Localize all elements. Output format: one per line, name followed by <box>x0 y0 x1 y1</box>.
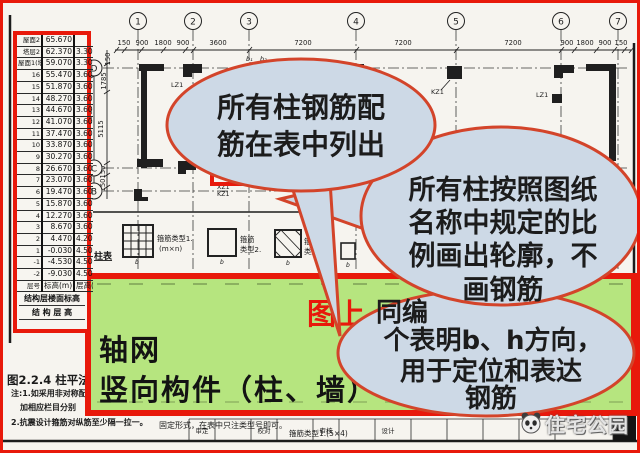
dim-label: 7200 <box>504 39 521 47</box>
note-4: 箍筋类型1.(5×4) <box>289 428 348 439</box>
green-red-label: 图上 <box>307 291 365 333</box>
table-cell: 37.470 <box>42 128 74 140</box>
axis-number: 3 <box>246 18 252 28</box>
axis-number: 7 <box>615 18 621 28</box>
table-cell: 4 <box>17 210 42 222</box>
watermark: 住宅公园 <box>519 407 640 439</box>
table-cell: 1 <box>17 245 42 257</box>
table-cell: 30.270 <box>42 152 74 164</box>
dim-label: 900 <box>136 39 149 47</box>
b-label: b <box>135 259 139 266</box>
b-label: b <box>346 262 350 269</box>
table-cell: 8 <box>17 163 42 175</box>
table-row: 1344.6703.60 <box>17 105 93 117</box>
dim-label: 1785 <box>100 72 108 89</box>
table-cell: 44.670 <box>42 105 74 117</box>
dim-label: 900 <box>599 39 612 47</box>
component-labels: KZ1 LZ1 LZ1 b₁ b₂ <box>171 55 548 99</box>
note-3b: 固定形式，在表中只注类型号即可。 <box>159 420 287 431</box>
table-cell: 48.270 <box>42 93 74 105</box>
table-row: 24.4704.20 <box>17 233 93 245</box>
axis-number: 2 <box>190 18 196 28</box>
table-cell: 3.60 <box>74 187 93 199</box>
top-dim-labels: 150 900 1800 900 3600 7200 7200 7200 900… <box>118 39 628 47</box>
axis-number: 4 <box>353 18 359 28</box>
table-cell <box>74 35 93 46</box>
table-cell: 10 <box>17 140 42 152</box>
table-cell: 51.870 <box>42 81 74 93</box>
axis-number: 6 <box>558 18 564 28</box>
green-highlight-panel: 图上 轴网 竖向构件（柱、墙） <box>85 273 637 416</box>
table-cell: 12 <box>17 116 42 128</box>
dim-label: 3600 <box>209 39 226 47</box>
table-cell: 16 <box>17 70 42 82</box>
dim-label: 150 <box>615 39 628 47</box>
table-row: 412.2703.60 <box>17 210 93 222</box>
table-cell: 3.30 <box>74 58 93 70</box>
table-footer-line1: 结构层楼面标高 <box>19 292 85 306</box>
table-row: 723.0703.60 <box>17 175 93 187</box>
table-cell: 3.60 <box>74 140 93 152</box>
note-3: 2.抗震设计箍筋对纵筋至少隔一拉一。 <box>11 417 148 428</box>
table-cell: 塔层2 <box>17 46 42 58</box>
note-1: 注:1.如采用非对称配 <box>11 388 87 399</box>
dim-label: 150 <box>104 53 112 66</box>
kz1-label: KZ1 <box>217 191 229 198</box>
table-cell: 屋面1(塔层1) <box>17 58 42 70</box>
table-cell: 3 <box>17 222 42 234</box>
table-cell: 4.470 <box>42 233 74 245</box>
table-cell: 14 <box>17 93 42 105</box>
panda-logo-icon <box>519 411 543 435</box>
table-cell: 6 <box>17 187 42 199</box>
table-cell: 3.60 <box>74 198 93 210</box>
table-row: 屋面1(塔层1)59.0703.30 <box>17 58 93 70</box>
table-cell: 26.670 <box>42 163 74 175</box>
table-row: 38.6703.60 <box>17 222 93 234</box>
green-line-axes: 轴网 <box>99 327 161 369</box>
table-cell: 3.60 <box>74 175 93 187</box>
dim-label: 900 <box>177 39 190 47</box>
green-line-vertical-members: 竖向构件（柱、墙） <box>99 367 378 409</box>
table-cell: -2 <box>17 269 42 281</box>
table-cell: -4.530 <box>42 257 74 269</box>
table-cell: 13 <box>17 105 42 117</box>
table-cell: 3.60 <box>74 222 93 234</box>
stirrup-diagrams: 柱表 箍筋类型1. (m×n) 箍筋 类型2. 箍筋 类型3. b b <box>94 225 355 269</box>
floor-elevation-table: 屋面265.670塔层262.3703.30屋面1(塔层1)59.0703.30… <box>13 31 91 333</box>
table-cell: 62.370 <box>42 46 74 58</box>
table-cell: 59.070 <box>42 58 74 70</box>
table-cell: 3.60 <box>74 105 93 117</box>
table-row: 619.4703.60 <box>17 187 93 199</box>
table-cell: 3.60 <box>74 81 93 93</box>
table-cell: 标高(m) <box>42 280 74 292</box>
table-cell: -9.030 <box>42 269 74 281</box>
table-cell: 15 <box>17 81 42 93</box>
table-cell: 3.60 <box>74 70 93 82</box>
table-row: 1-0.0304.50 <box>17 245 93 257</box>
table-cell: 3.60 <box>74 163 93 175</box>
watermark-text: 住宅公园 <box>545 409 629 438</box>
table-cell: 33.870 <box>42 140 74 152</box>
dim-label: 1800 <box>576 39 593 47</box>
stirrup2-label: 箍筋 <box>240 235 254 244</box>
dim-label: 7200 <box>394 39 411 47</box>
table-cell: 3.60 <box>74 93 93 105</box>
stirrup3-label: 类型3. <box>304 247 325 256</box>
table-row: 515.8703.60 <box>17 198 93 210</box>
table-cell: 9 <box>17 152 42 164</box>
table-cell: 3.30 <box>74 46 93 58</box>
b2-label: b₂ <box>260 55 267 63</box>
floor-table: 屋面265.670塔层262.3703.30屋面1(塔层1)59.0703.30… <box>17 35 93 292</box>
table-row: 1551.8703.60 <box>17 81 93 93</box>
table-row: 826.6703.60 <box>17 163 93 175</box>
stirrup1-size: (m×n) <box>159 244 182 253</box>
covered-drawing-marks <box>97 283 625 285</box>
table-row: -1-4.5304.50 <box>17 257 93 269</box>
columns-walls <box>134 64 616 201</box>
table-cell: 15.870 <box>42 198 74 210</box>
stirrup2-label: 类型2. <box>240 245 261 254</box>
floor-table-body: 屋面265.670塔层262.3703.30屋面1(塔层1)59.0703.30… <box>17 35 93 292</box>
table-cell: 12.270 <box>42 210 74 222</box>
table-row: 1241.0703.60 <box>17 116 93 128</box>
lz1-label: LZ1 <box>536 91 548 99</box>
lz1-label: LZ1 <box>171 81 183 89</box>
table-cell: 55.470 <box>42 70 74 82</box>
table-cell: 2 <box>17 233 42 245</box>
titleblock-cell: 设计 <box>382 426 396 435</box>
dim-label: 900 <box>561 39 574 47</box>
screenshot-root: 150 900 1800 900 3600 7200 7200 7200 900… <box>0 0 640 453</box>
axis-number: 5 <box>453 18 459 28</box>
b-label: b <box>220 259 224 266</box>
table-cell: 23.070 <box>42 175 74 187</box>
table-row: 1655.4703.60 <box>17 70 93 82</box>
column-table-label: 柱表 <box>94 250 113 262</box>
table-cell: 4.20 <box>74 233 93 245</box>
table-cell: 5 <box>17 198 42 210</box>
axis-number: 1 <box>135 18 141 28</box>
table-row: 1033.8703.60 <box>17 140 93 152</box>
table-cell: -0.030 <box>42 245 74 257</box>
table-cell: 7 <box>17 175 42 187</box>
table-row: 塔层262.3703.30 <box>17 46 93 58</box>
table-cell: 3.60 <box>74 152 93 164</box>
stirrup3-label: 箍筋 <box>304 237 318 246</box>
table-row: -2-9.0304.50 <box>17 269 93 281</box>
table-cell: 41.070 <box>42 116 74 128</box>
dim-label: 5115 <box>97 120 105 137</box>
stirrup1-label: 箍筋类型1. <box>157 234 193 243</box>
table-row: 屋面265.670 <box>17 35 93 46</box>
table-cell: 层高(m) <box>74 280 93 292</box>
table-cell: 4.50 <box>74 257 93 269</box>
table-cell: 3.60 <box>74 210 93 222</box>
table-cell: 65.670 <box>42 35 74 46</box>
table-row: 930.2703.60 <box>17 152 93 164</box>
note-2: 加相应栏目分别 <box>20 402 76 413</box>
table-cell: 19.470 <box>42 187 74 199</box>
dim-label: 150 <box>118 39 131 47</box>
dim-label: 7200 <box>294 39 311 47</box>
b-label: b <box>286 260 290 267</box>
b1-label: b₁ <box>246 55 253 63</box>
table-cell: 4.50 <box>74 269 93 281</box>
table-cell: 层号 <box>17 280 42 292</box>
table-cell: -1 <box>17 257 42 269</box>
table-cell: 8.670 <box>42 222 74 234</box>
table-row: 1137.4703.60 <box>17 128 93 140</box>
table-cell: 屋面2 <box>17 35 42 46</box>
table-cell: 3.60 <box>74 128 93 140</box>
table-row: 1448.2703.60 <box>17 93 93 105</box>
table-cell: 4.50 <box>74 245 93 257</box>
table-row: 层号标高(m)层高(m) <box>17 280 93 292</box>
table-cell: 11 <box>17 128 42 140</box>
dim-label: 1800 <box>154 39 171 47</box>
table-cell: 3.60 <box>74 116 93 128</box>
table-footer-line2: 结 构 层 高 <box>19 306 85 320</box>
